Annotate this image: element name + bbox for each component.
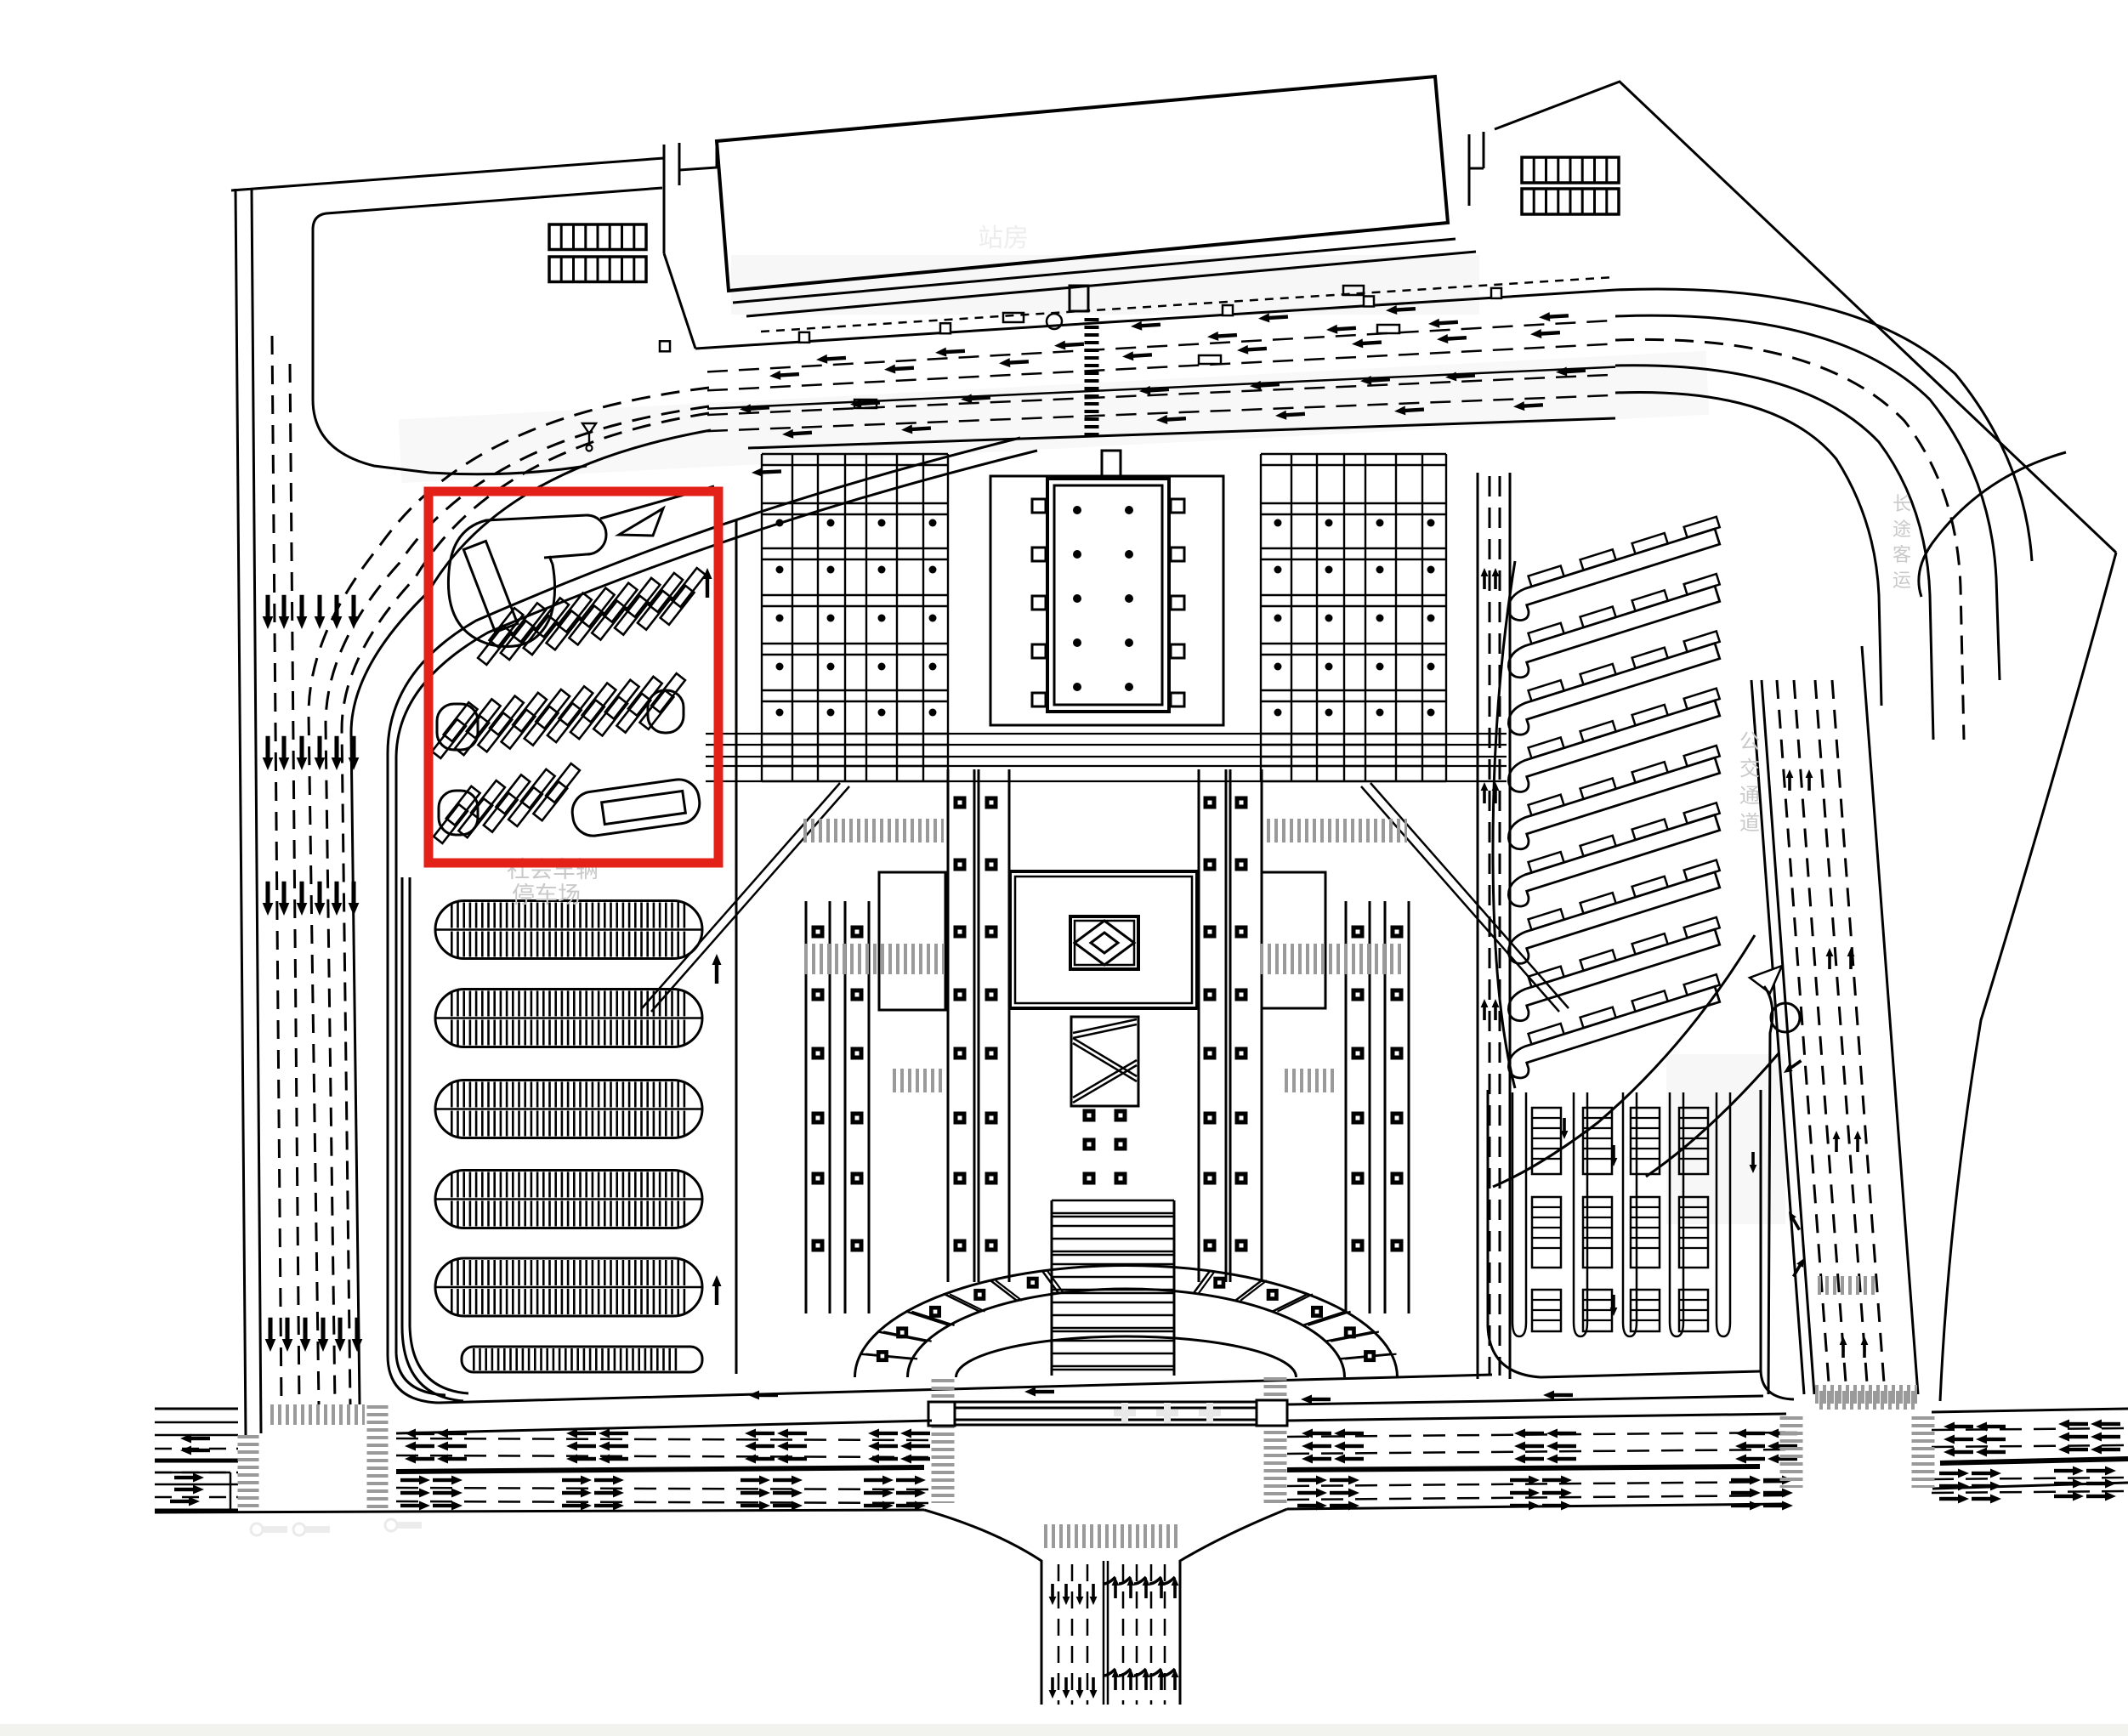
svg-text:站房: 站房 [978,224,1029,252]
svg-text:客: 客 [1893,544,1911,565]
svg-text:停车场: 停车场 [512,882,581,908]
svg-text:长: 长 [1893,493,1911,514]
svg-text:通: 通 [1739,785,1760,808]
svg-text:道: 道 [1739,812,1760,835]
svg-text:交: 交 [1739,757,1760,780]
svg-text:运: 运 [1893,570,1911,591]
svg-text:途: 途 [1893,519,1911,540]
svg-text:公: 公 [1739,730,1760,753]
